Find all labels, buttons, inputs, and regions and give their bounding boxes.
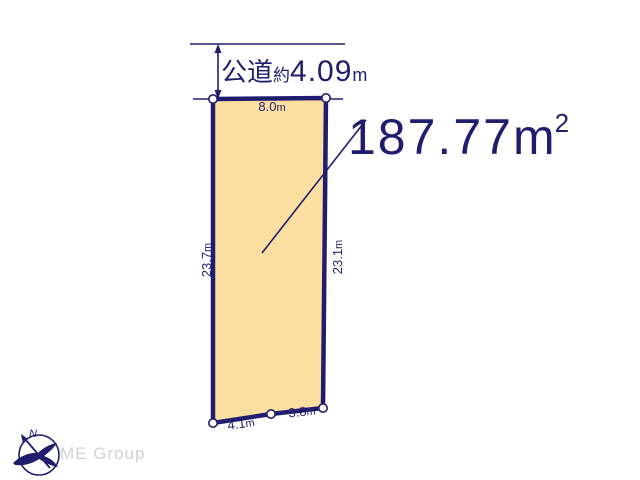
dimension-left-edge: 23.7m [200, 232, 214, 288]
road-width-unit: m [352, 65, 367, 85]
parcel-polygon [213, 98, 326, 423]
land-plot-diagram: N 公道約4.09m 187.77m2 8.0m 23.7m 23.1m 4.1… [0, 0, 640, 480]
dimension-unit: m [276, 102, 285, 114]
dimension-unit: m [333, 240, 345, 249]
dimension-value: 23.1 [330, 249, 345, 274]
area-label: 187.77m2 [348, 112, 571, 162]
corner-marker [322, 94, 330, 102]
dimension-right-edge: 23.1m [331, 229, 345, 285]
dimension-unit: m [245, 417, 256, 430]
area-value: 187.77 [348, 109, 513, 165]
road-approx: 約 [273, 66, 290, 85]
road-width-value: 4.09 [290, 55, 352, 88]
road-label: 公道約4.09m [221, 57, 367, 87]
dimension-top-edge: 8.0m [244, 100, 300, 114]
dimension-value: 3.8 [288, 404, 308, 421]
dimension-unit: m [202, 243, 214, 252]
dimension-unit: m [306, 405, 316, 418]
corner-marker [209, 95, 217, 103]
compass-north-label: N [29, 428, 37, 440]
arrow-head-up-icon [215, 44, 222, 53]
company-watermark: ME Group [60, 444, 145, 464]
compass: N [13, 428, 59, 475]
area-unit: m [513, 109, 557, 165]
area-exponent: 2 [555, 108, 569, 138]
dimension-value: 23.7 [199, 252, 214, 277]
dimension-value: 8.0 [258, 99, 276, 114]
road-name: 公道 [221, 57, 273, 87]
